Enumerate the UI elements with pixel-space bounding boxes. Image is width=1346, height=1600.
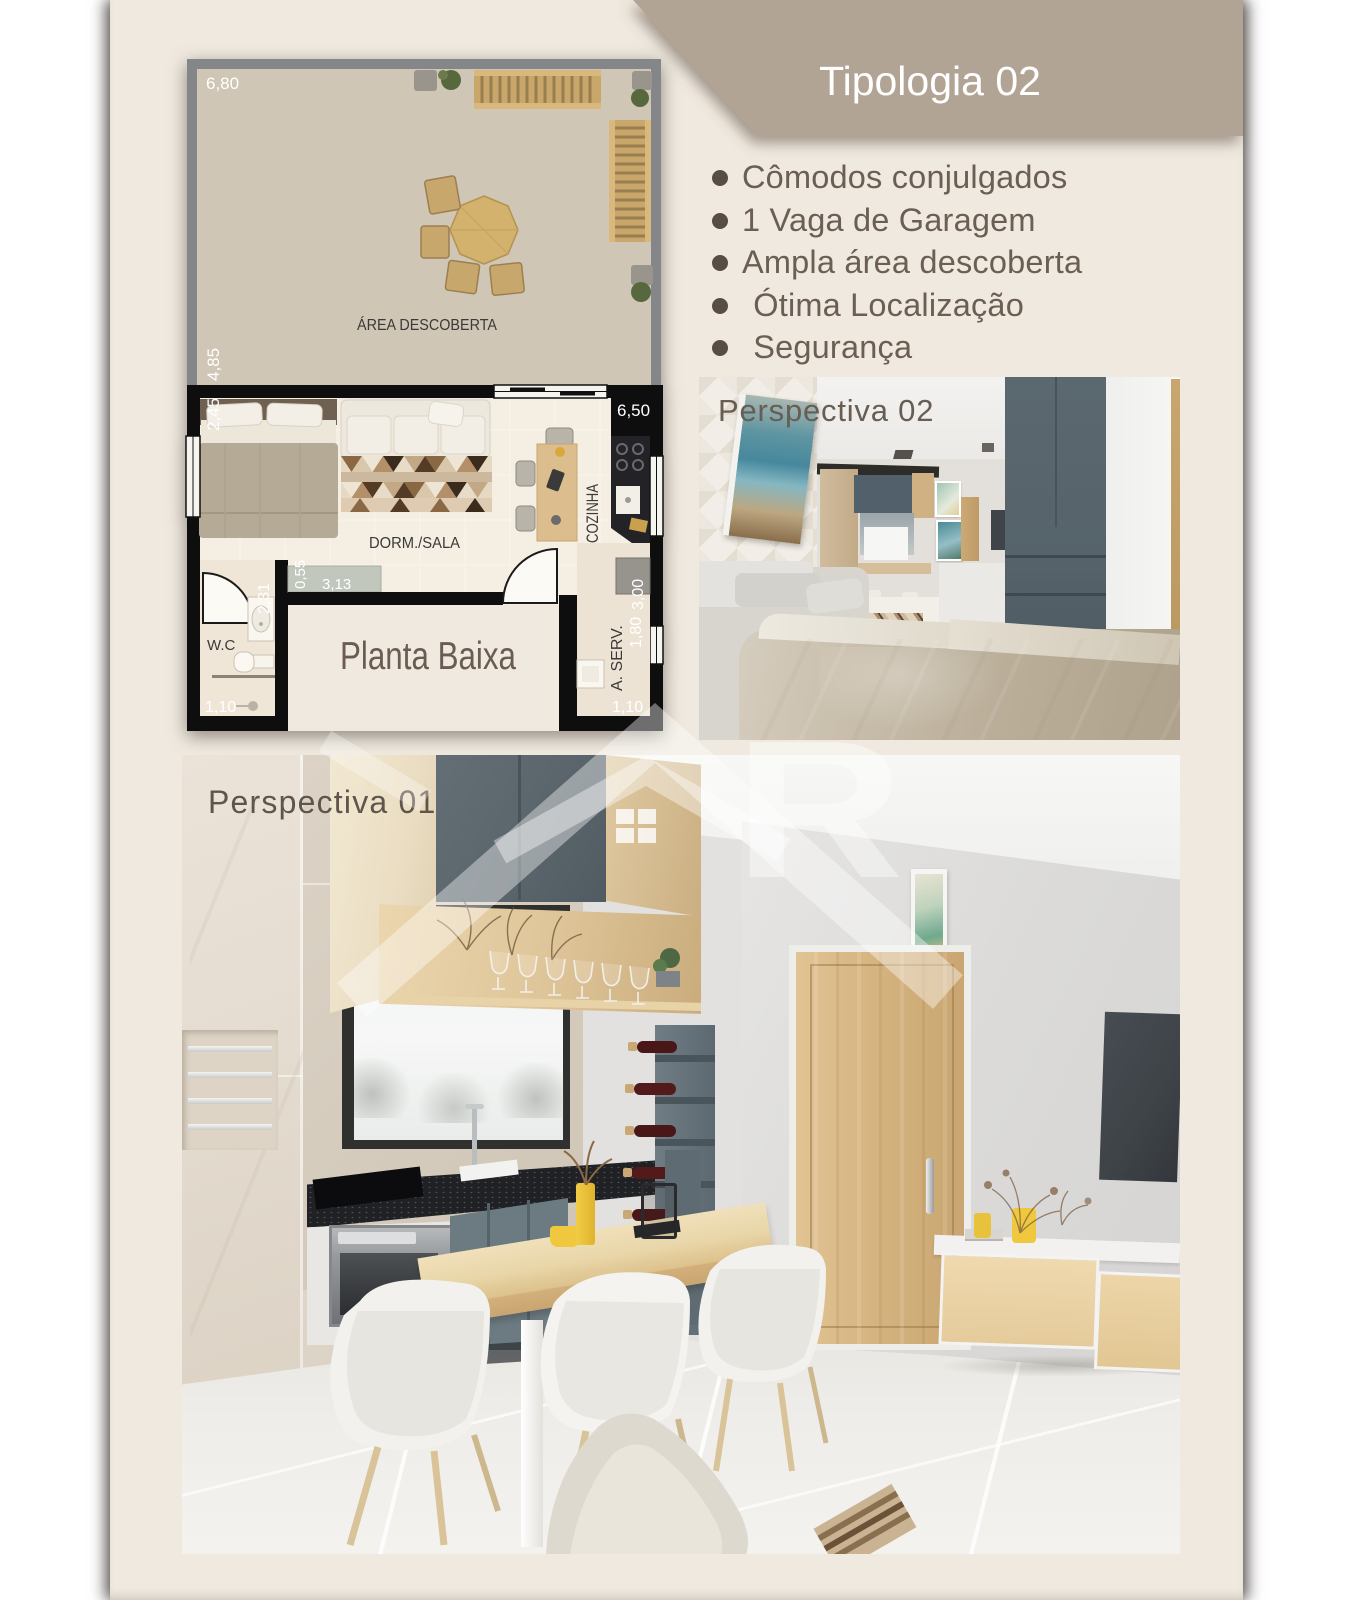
- svg-text:6,80: 6,80: [206, 74, 239, 93]
- svg-text:6,50: 6,50: [617, 401, 650, 420]
- svg-text:W.C: W.C: [207, 637, 235, 654]
- svg-text:0,55: 0,55: [292, 560, 309, 589]
- svg-text:3,00: 3,00: [630, 579, 647, 610]
- svg-text:1,80: 1,80: [628, 617, 645, 648]
- svg-text:2,31: 2,31: [256, 583, 273, 614]
- svg-text:3,13: 3,13: [322, 576, 351, 593]
- svg-text:1,10: 1,10: [205, 699, 236, 716]
- svg-text:2,45: 2,45: [204, 398, 223, 431]
- svg-text:4,85: 4,85: [204, 348, 223, 381]
- svg-text:Planta Baixa: Planta Baixa: [340, 635, 516, 678]
- svg-text:COZINHA: COZINHA: [583, 483, 602, 543]
- svg-text:R: R: [734, 700, 904, 919]
- svg-text:DORM./SALA: DORM./SALA: [369, 535, 460, 552]
- svg-text:A. SERV.: A. SERV.: [609, 625, 626, 691]
- svg-text:ÁREA DESCOBERTA: ÁREA DESCOBERTA: [357, 315, 497, 334]
